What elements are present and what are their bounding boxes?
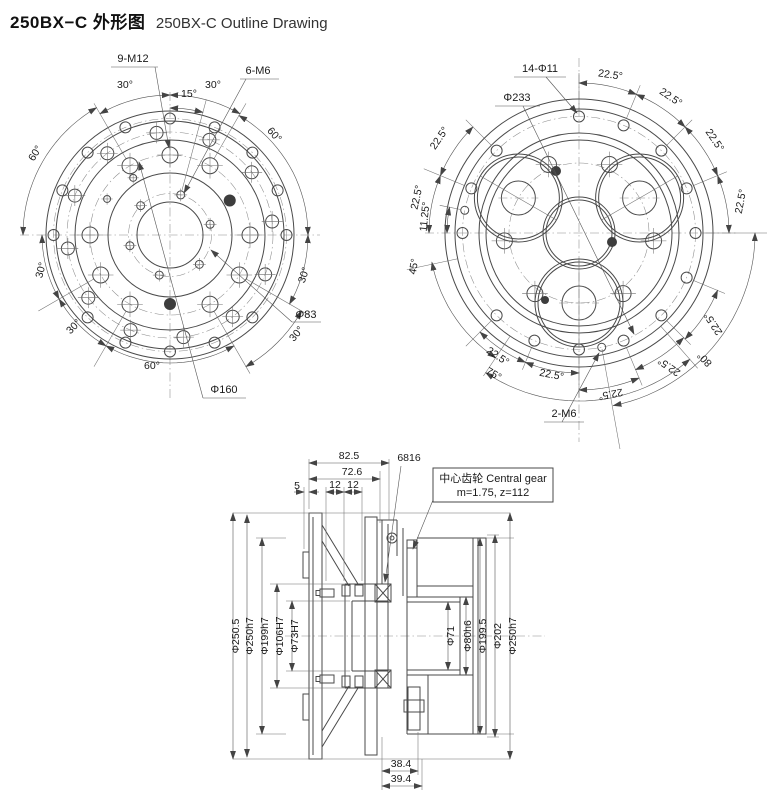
dimension-arc xyxy=(447,207,450,233)
dim-38-4: 38.4 xyxy=(391,758,412,770)
dia-dim-250h7-left: Φ250h7 xyxy=(244,617,256,655)
dim-12: 12 xyxy=(329,479,341,491)
lower-housing xyxy=(407,675,473,734)
spline-slot xyxy=(342,585,350,596)
extension-line xyxy=(466,321,491,346)
label-14-d11: 14-Φ11 xyxy=(522,63,558,75)
plug-hole xyxy=(224,195,236,207)
plug-hole xyxy=(607,237,617,247)
leader-line-d83 xyxy=(211,250,292,322)
dim-12: 12 xyxy=(347,479,359,491)
dim-5: 5 xyxy=(294,480,300,492)
section-view: 82.5 72.6 5 12 12 6816 中心齿轮 Central gear… xyxy=(230,450,553,790)
label-bearing-6816: 6816 xyxy=(397,452,421,464)
spline-slot xyxy=(355,676,363,687)
bolt-hole xyxy=(461,206,469,214)
spline-slot xyxy=(342,676,350,687)
extension-line xyxy=(466,120,491,145)
bolt-hole xyxy=(491,145,502,156)
plug-hole xyxy=(164,298,176,310)
label-2-m6: 2-M6 xyxy=(551,408,576,420)
flange-step xyxy=(303,552,309,578)
leader-line-14-d11 xyxy=(546,77,577,113)
angle-dim: 11.25° xyxy=(417,201,432,232)
flange-step xyxy=(303,694,309,720)
extension-line xyxy=(694,280,725,293)
angle-dim: 15° xyxy=(181,88,197,100)
angle-dim: 60° xyxy=(144,360,160,372)
dimension-arc xyxy=(23,108,97,235)
lower-bolt xyxy=(408,687,420,730)
angle-dim: 22.5° xyxy=(428,125,452,152)
extension-line xyxy=(694,172,727,186)
dia-dim-199-5: Φ199.5 xyxy=(477,619,489,654)
label-d233: Φ233 xyxy=(503,92,530,104)
bolt-hole xyxy=(491,310,502,321)
dimension-arc xyxy=(718,176,729,233)
bolt-hole xyxy=(598,343,606,351)
plug-hole xyxy=(541,296,549,304)
angle-dim: 22.5° xyxy=(703,127,727,154)
bolt-hole xyxy=(57,185,68,196)
bolt-hole xyxy=(120,337,131,348)
label-9-m12: 9-M12 xyxy=(117,53,148,65)
angle-dim: 30° xyxy=(287,324,306,344)
angle-dim: 80° xyxy=(695,349,715,369)
gear-note-line1: 中心齿轮 Central gear xyxy=(439,471,547,485)
angle-dim: 75° xyxy=(484,365,504,383)
extension-line xyxy=(626,85,640,118)
angle-dim: 22.5° xyxy=(733,188,749,214)
input-plate-lines xyxy=(417,538,473,586)
angle-dim: 30° xyxy=(33,261,49,279)
extension-line xyxy=(667,321,691,345)
right-view-geometry xyxy=(407,58,767,442)
angle-dim: 22.5° xyxy=(657,86,684,110)
dimension-arc xyxy=(432,262,496,357)
angle-dim: 60° xyxy=(26,143,45,163)
angle-dim: 30° xyxy=(296,266,312,285)
dim-82-5: 82.5 xyxy=(339,450,360,462)
extension-line xyxy=(667,120,692,145)
gear-note-line2: m=1.75, z=112 xyxy=(457,487,530,499)
bolt-hole xyxy=(272,185,283,196)
dia-dim-199h7: Φ199h7 xyxy=(259,617,271,655)
outline-drawing-canvas: 9-M12 6-M6 Φ83 Φ160 30° 15° 30° 60° 60° … xyxy=(0,0,768,812)
label-d83: Φ83 xyxy=(295,309,316,321)
label-d160: Φ160 xyxy=(210,384,237,396)
outline-drawing-page: 250BX−C 外形图 250BX-C Outline Drawing 9-M1… xyxy=(0,0,768,812)
angle-dim: 22.5° xyxy=(597,67,623,82)
dim-39-4: 39.4 xyxy=(391,773,412,785)
spline-slot xyxy=(355,585,363,596)
dia-dim-250-5: Φ250.5 xyxy=(230,619,242,654)
bolt-head xyxy=(316,591,320,596)
dia-dim-71: Φ71 xyxy=(445,626,457,646)
leader-line-6816 xyxy=(385,466,401,582)
dimension-arc xyxy=(579,83,636,94)
angle-dim: 22.5° xyxy=(656,354,683,378)
angle-dim: 22.5° xyxy=(484,345,511,369)
leader-line-gear-note xyxy=(413,500,433,549)
dia-dim-73h7: Φ73H7 xyxy=(289,619,301,653)
dia-dim-80h6: Φ80h6 xyxy=(462,620,474,652)
dia-dim-250h7-right: Φ250h7 xyxy=(507,617,519,655)
dia-dim-106h7: Φ106H7 xyxy=(274,616,286,655)
dim-72-6: 72.6 xyxy=(342,466,363,478)
label-6-m6: 6-M6 xyxy=(245,65,270,77)
right-view-annotations: 14-Φ11 Φ233 2-M6 22.5° 22.5° 22.5° 22.5°… xyxy=(407,63,750,449)
bolt-head xyxy=(316,677,320,682)
angle-dim: 45° xyxy=(407,258,422,276)
bolt-hole xyxy=(529,335,540,346)
central-gear-teeth xyxy=(407,540,417,597)
angle-dim: 30° xyxy=(205,79,221,91)
extension-line xyxy=(522,348,531,370)
angle-dim: 22.5° xyxy=(538,367,564,383)
dia-dim-202: Φ202 xyxy=(492,623,504,649)
extension-line xyxy=(424,169,465,186)
extension-line xyxy=(38,279,93,311)
angle-dim: 30° xyxy=(117,79,133,91)
angle-dim: 60° xyxy=(264,125,284,145)
angle-dim: 30° xyxy=(64,317,84,337)
